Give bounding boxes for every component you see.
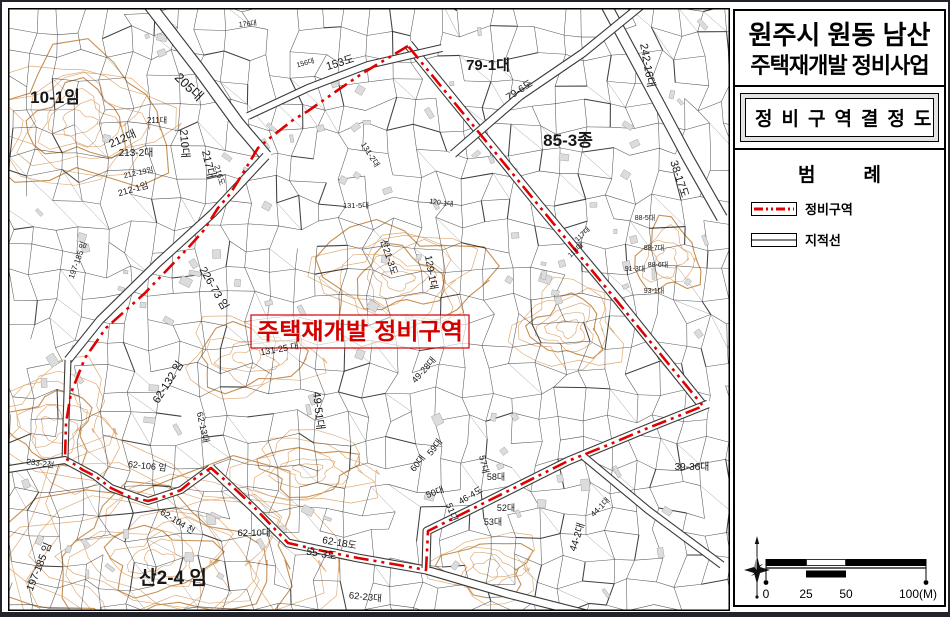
- parcel-label: 58대: [487, 472, 505, 482]
- scale-100: 100(M): [899, 587, 937, 601]
- parcel-label: 211대: [147, 116, 167, 125]
- parcel-label: 50대: [425, 484, 446, 500]
- title-panel: 원주시 원동 남산 주택재개발 정비사업 정비구역결정도 범 례 정비구역: [733, 9, 946, 607]
- map-type-box: 정비구역결정도: [740, 93, 939, 142]
- parcel-label: 85-3종: [543, 131, 593, 150]
- parcel-label: 53대: [484, 517, 502, 527]
- parcel-label: 44-1대: [589, 496, 612, 519]
- zone-label: 주택재개발 정비구역: [257, 319, 463, 344]
- parcel-label: 176대: [238, 19, 257, 29]
- legend-label-boundary: 정비구역: [805, 199, 853, 218]
- parcel-label: 131-5대: [343, 201, 369, 210]
- parcel-label: 62-23대: [348, 590, 382, 604]
- legend-heading-right: 례: [864, 160, 881, 187]
- parcel-label: 156대: [296, 57, 316, 69]
- map-type-title: 정비구역결정도: [745, 98, 934, 137]
- parcel-label: 산21-3도: [378, 238, 400, 276]
- legend-item-boundary: 정비구역: [751, 199, 944, 218]
- map-area: 주택재개발 정비구역10-1임205대212대213-2대211대210대217…: [8, 8, 730, 611]
- boundary-swatch-icon: [751, 202, 797, 216]
- parcel-label: 52대: [497, 503, 515, 513]
- parcel-label: 60대: [408, 453, 427, 474]
- parcel-label: 91-3대: [625, 265, 645, 273]
- parcel-label: 79-1대: [466, 57, 510, 74]
- parcel-label: 213-2대: [119, 147, 154, 159]
- parcel-label: 62-10대: [237, 528, 270, 539]
- parcel-label: 88-6대: [648, 261, 668, 269]
- cadastral-swatch-icon: [751, 233, 797, 247]
- legend: 범 례 정비구역 지적선: [735, 150, 944, 249]
- parcel-label: 131-2대: [359, 140, 381, 168]
- parcel-label: 88-5대: [635, 214, 655, 222]
- cadastral-map: 주택재개발 정비구역10-1임205대212대213-2대211대210대217…: [8, 8, 730, 611]
- parcel-label: 210대: [177, 129, 192, 158]
- parcel-label: 93-1대: [644, 287, 664, 295]
- project-title-line1: 원주시 원동 남산: [737, 19, 942, 52]
- scale-25: 25: [799, 587, 813, 601]
- parcel-label: 산2-4 임: [139, 567, 207, 589]
- legend-heading: 범 례: [735, 160, 944, 187]
- scale-50: 50: [839, 587, 853, 601]
- scale-bar: 0 25 50 100(M): [758, 553, 940, 603]
- map-document: 주택재개발 정비구역10-1임205대212대213-2대211대210대217…: [0, 0, 950, 617]
- parcel-label: 88-7대: [644, 244, 664, 252]
- parcel-label: 117대: [573, 226, 591, 244]
- panel-empty-space: [735, 249, 944, 533]
- parcel-label: 10-1임: [30, 87, 80, 107]
- legend-label-cadastral: 지적선: [805, 230, 841, 249]
- project-title: 원주시 원동 남산 주택재개발 정비사업: [735, 11, 944, 87]
- legend-heading-left: 범: [798, 160, 815, 187]
- parcel-label: 49-28대: [410, 355, 438, 385]
- parcel-label: 39-36대: [675, 461, 710, 473]
- parcel-label: 44-2대: [567, 521, 587, 552]
- legend-item-cadastral: 지적선: [751, 230, 944, 249]
- scale-0: 0: [763, 587, 770, 601]
- parcel-label: 55-3도: [305, 545, 338, 562]
- parcel-label: 120-1대: [429, 197, 454, 208]
- parcel-label: 62-132 임: [150, 359, 186, 406]
- panel-bottom: 0 25 50 100(M): [735, 533, 944, 605]
- project-title-line2: 주택재개발 정비사업: [737, 52, 942, 80]
- parcel-label: 62-106 임: [127, 458, 167, 473]
- parcel-label: 212-19임: [123, 165, 154, 180]
